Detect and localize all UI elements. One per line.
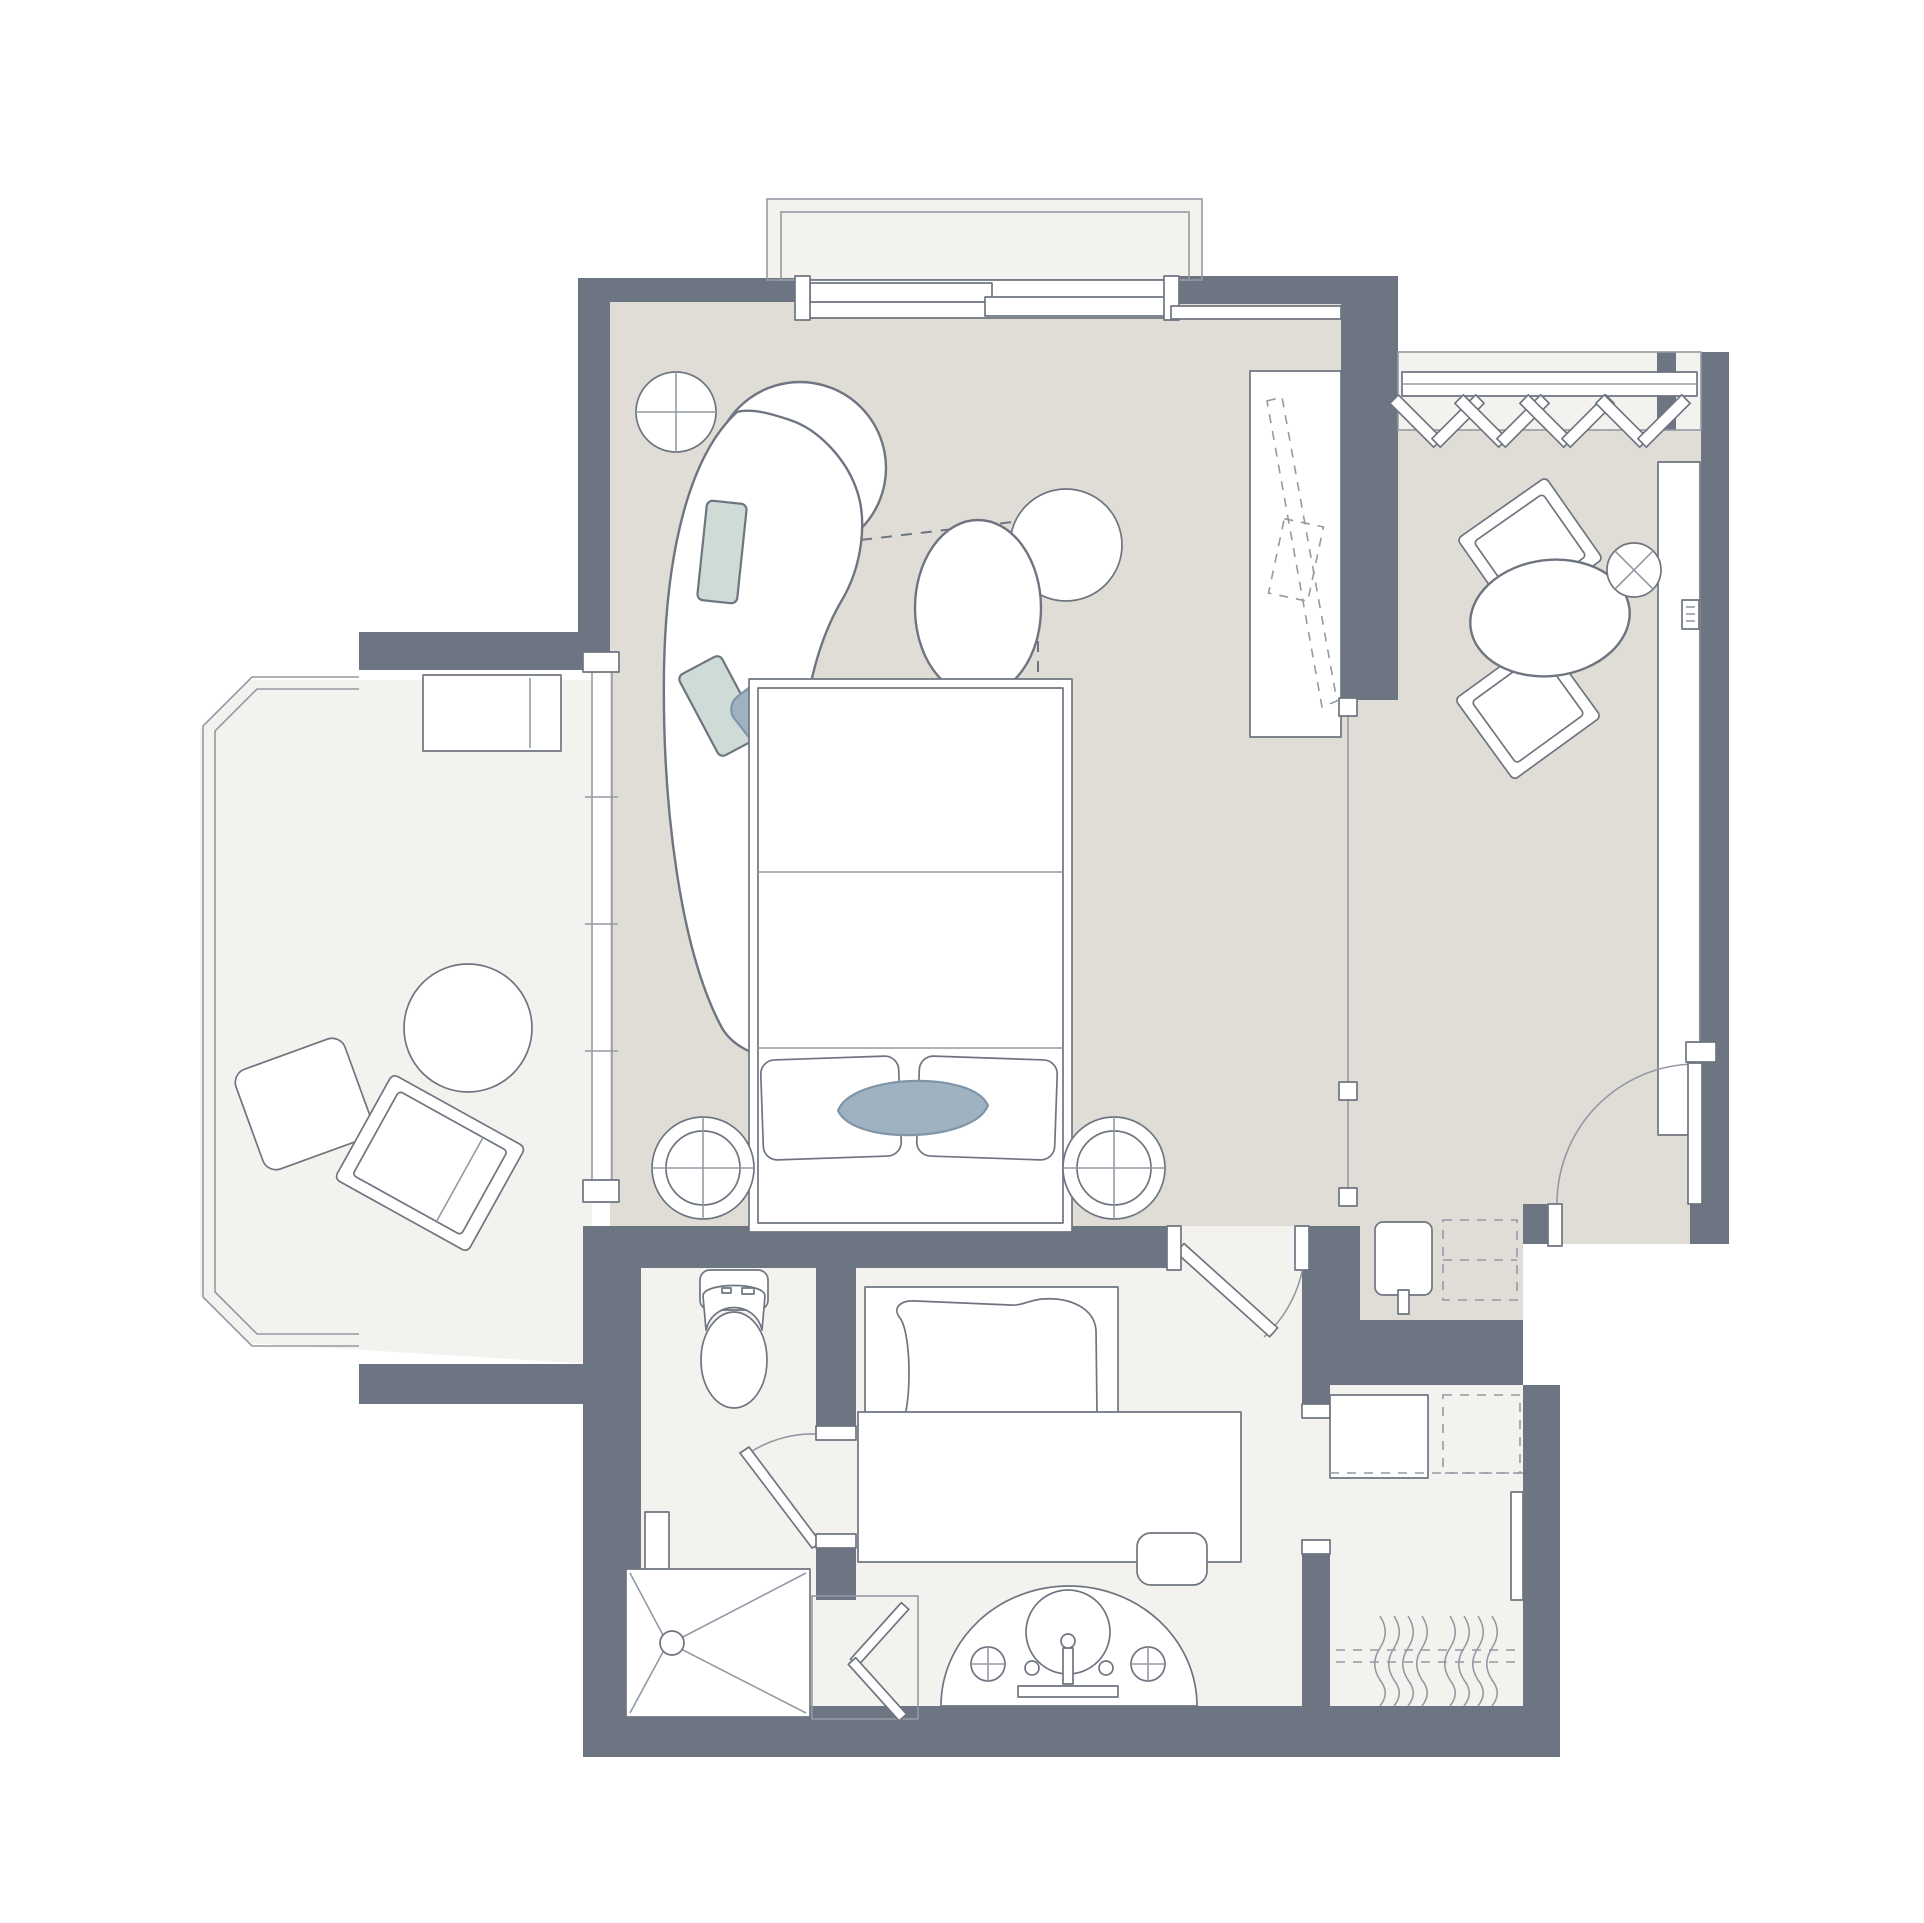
floor-plan-drawing: [0, 0, 1924, 1923]
balcony-lounger: [423, 675, 561, 751]
closet-jamb-bottom: [1302, 1540, 1330, 1554]
wall-control-panel: [1682, 600, 1699, 629]
wall-right-exterior: [1701, 352, 1729, 1204]
wall-left-upper: [578, 278, 610, 670]
wc-door-floor: [816, 1440, 856, 1545]
wall-wc-right-lower: [816, 1545, 856, 1600]
luggage-rack: [1330, 1395, 1428, 1478]
stool-side-table: [1607, 543, 1661, 597]
desk-console: [1658, 462, 1700, 1135]
wall-closet-right: [1523, 1385, 1560, 1725]
king-bed: [749, 679, 1072, 1232]
curtain-track: [1171, 306, 1341, 319]
nightstand-left: [652, 1117, 754, 1219]
closet-jamb-top: [1302, 1404, 1330, 1418]
window-jamb-top: [583, 652, 619, 672]
sliding-door-panel-2: [985, 297, 1168, 316]
coffee-table: [915, 520, 1041, 696]
toilet: [700, 1270, 768, 1408]
shower-drain: [660, 1631, 684, 1655]
wall-under-minibar: [1310, 1320, 1523, 1385]
wall-wc-right-upper: [816, 1226, 856, 1440]
floor-plan-page: [0, 0, 1924, 1923]
wall-balcony-top-stub: [359, 632, 578, 670]
wall-entry-south-right: [1690, 1204, 1729, 1244]
wall-closet-left-b: [1302, 1540, 1330, 1706]
entry-door-jamb-top: [1686, 1042, 1716, 1062]
juliet-balcony-floor: [767, 199, 1202, 280]
closet-door-floor: [1302, 1418, 1330, 1540]
faucet: [1063, 1648, 1073, 1684]
bath-door-jamb-right: [1295, 1226, 1309, 1270]
sliding-door-jamb-left: [795, 276, 810, 320]
balcony-table: [404, 964, 532, 1092]
nightstand-right: [1063, 1117, 1165, 1219]
vanity-tray: [1018, 1686, 1118, 1697]
wc-door-jamb-bottom: [816, 1534, 856, 1548]
vanity-stool: [1137, 1533, 1207, 1585]
shower: [626, 1569, 810, 1717]
window-jamb-bottom: [583, 1180, 619, 1202]
mirror: [1511, 1492, 1523, 1600]
wall-main-right: [1341, 276, 1398, 700]
sliding-door-panel-1: [810, 283, 992, 302]
entry-door-leaf: [1688, 1063, 1702, 1204]
wc-door-jamb-top: [816, 1426, 856, 1440]
tv-cabinet: [1250, 371, 1341, 737]
wall-balcony-bottom-stub: [359, 1364, 583, 1404]
bath-door-jamb-left: [1167, 1226, 1181, 1270]
balcony-floor: [200, 680, 592, 1364]
passage-floor: [1341, 700, 1398, 1226]
side-table: [636, 372, 716, 452]
shower-pass-floor: [816, 1600, 856, 1706]
vanity-sconce-left: [971, 1647, 1005, 1681]
entry-door-jamb-left: [1548, 1204, 1562, 1246]
wall-top-left: [578, 278, 803, 302]
wardrobe-shelf: [1402, 372, 1697, 396]
vanity-sconce-right: [1131, 1647, 1165, 1681]
